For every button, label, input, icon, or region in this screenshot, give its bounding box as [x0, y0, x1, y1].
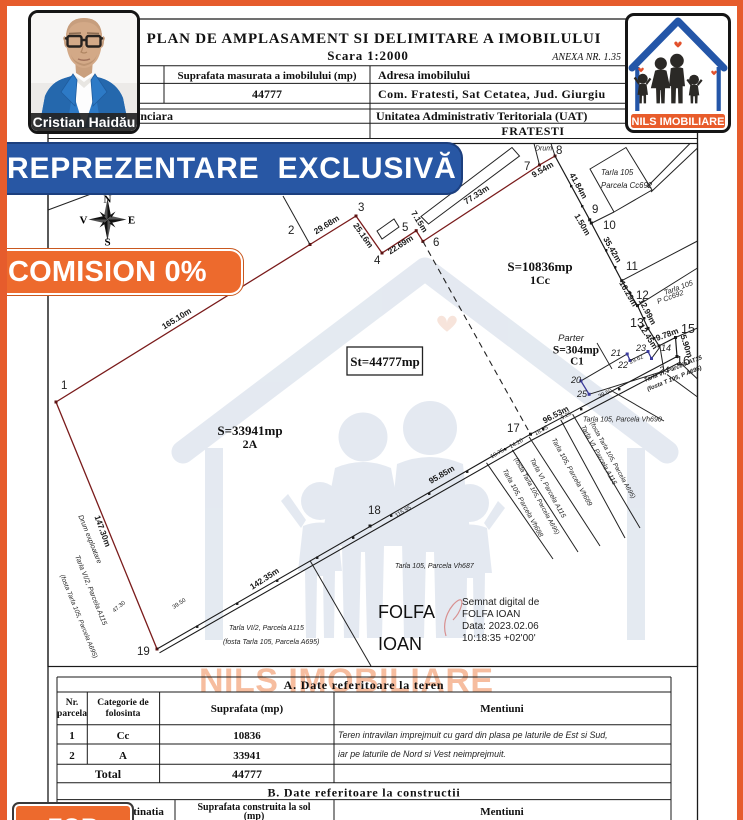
svg-text:23: 23: [635, 343, 646, 353]
svg-text:1: 1: [69, 730, 75, 742]
svg-text:1Cc: 1Cc: [530, 273, 551, 287]
svg-text:17: 17: [507, 423, 520, 435]
svg-text:3: 3: [358, 202, 364, 214]
svg-text:B. Date referitoare la con: B. Date referitoare la constructii: [267, 786, 460, 800]
svg-text:folosinta: folosinta: [106, 709, 141, 719]
svg-text:8: 8: [556, 145, 562, 157]
svg-text:10: 10: [603, 220, 616, 232]
svg-text:18: 18: [368, 505, 381, 517]
svg-text:Suprafata masurata a imobilulu: Suprafata masurata a imobilului (mp): [177, 70, 356, 82]
svg-text:Scara 1:2000: Scara 1:2000: [327, 48, 408, 63]
svg-text:Mentiuni: Mentiuni: [480, 806, 523, 818]
svg-text:parcela: parcela: [57, 709, 87, 719]
svg-text:Tarla 105, Parcela Vh687: Tarla 105, Parcela Vh687: [395, 563, 475, 570]
svg-text:44777: 44777: [232, 767, 262, 781]
svg-text:S: S: [104, 237, 110, 249]
svg-text:Tarla 105: Tarla 105: [601, 168, 634, 177]
svg-text:10836: 10836: [233, 730, 261, 742]
svg-text:E: E: [128, 215, 135, 227]
svg-text:4: 4: [374, 255, 381, 267]
svg-text:14: 14: [661, 343, 671, 353]
svg-text:9: 9: [592, 204, 598, 216]
svg-text:47.30: 47.30: [112, 600, 127, 614]
svg-text:PLAN DE AMPLASAMENT SI DEL: PLAN DE AMPLASAMENT SI DELIMITARE A IMOB…: [147, 31, 602, 47]
svg-text:C1: C1: [570, 356, 583, 368]
svg-text:(fosta Tarla 105, Parcela A695: (fosta Tarla 105, Parcela A695): [223, 639, 319, 646]
svg-text:Data: 2023.02.06: Data: 2023.02.06: [462, 621, 539, 632]
svg-text:9.54m: 9.54m: [530, 159, 555, 179]
svg-text:Adresa imobilului: Adresa imobilului: [378, 68, 471, 82]
svg-text:Teren intravilan imprejmuit cu: Teren intravilan imprejmuit cu gard din …: [338, 730, 608, 740]
svg-text:N: N: [104, 194, 112, 206]
svg-text:St=44777mp: St=44777mp: [350, 354, 420, 369]
svg-text:Cc: Cc: [117, 730, 130, 742]
svg-text:V: V: [80, 215, 88, 227]
svg-text:1.50m: 1.50m: [572, 212, 592, 237]
svg-text:FOLFA IOAN: FOLFA IOAN: [462, 609, 520, 620]
svg-text:FOLFA: FOLFA: [378, 602, 435, 622]
svg-text:S=33941mp: S=33941mp: [217, 423, 282, 438]
svg-text:2A: 2A: [243, 437, 258, 451]
svg-text:Categorie de: Categorie de: [97, 698, 148, 708]
svg-text:22: 22: [617, 360, 628, 370]
svg-text:19: 19: [137, 646, 150, 658]
svg-text:21: 21: [610, 348, 621, 358]
svg-text:Parter: Parter: [558, 333, 585, 344]
svg-text:Mentiuni: Mentiuni: [480, 703, 523, 715]
svg-text:39.50: 39.50: [172, 598, 187, 611]
svg-text:2: 2: [288, 225, 294, 237]
svg-text:S=10836mp: S=10836mp: [507, 259, 572, 274]
svg-text:Tarla VI/2, Parcela A115: Tarla VI/2, Parcela A115: [229, 625, 304, 632]
svg-text:20: 20: [570, 375, 581, 385]
svg-text:NILS IMOBILIARE: NILS IMOBILIARE: [632, 116, 725, 128]
svg-text:FRATESTI: FRATESTI: [501, 124, 564, 138]
svg-text:10.75: 10.75: [490, 448, 506, 460]
svg-text:A: A: [119, 750, 127, 762]
svg-text:Total: Total: [95, 767, 122, 781]
svg-text:29.68m: 29.68m: [312, 213, 341, 236]
svg-text:IOAN: IOAN: [378, 634, 422, 654]
svg-text:10:18:35 +02'00': 10:18:35 +02'00': [462, 633, 536, 644]
svg-text:5: 5: [402, 222, 408, 234]
svg-text:(mp): (mp): [244, 811, 265, 820]
svg-text:A. Date referitoare la ter: A. Date referitoare la teren: [284, 678, 445, 692]
svg-text:2: 2: [69, 750, 75, 762]
svg-text:Semnat digital de: Semnat digital de: [462, 597, 540, 608]
svg-text:77.33m: 77.33m: [462, 183, 491, 207]
svg-text:11: 11: [626, 261, 638, 273]
svg-text:Com. Fratesti, Sat Cetatea, Ju: Com. Fratesti, Sat Cetatea, Jud. Giurgiu: [378, 87, 606, 101]
svg-text:Unitatea Administrativ Teritor: Unitatea Administrativ Teritoriala (UAT): [376, 109, 587, 123]
svg-text:25: 25: [576, 389, 588, 399]
svg-text:Drum: Drum: [535, 146, 552, 153]
svg-text:6: 6: [433, 237, 439, 249]
svg-text:33941: 33941: [233, 750, 261, 762]
svg-text:25.16m: 25.16m: [351, 221, 375, 250]
svg-text:Nr.: Nr.: [66, 698, 79, 708]
svg-text:29.62: 29.62: [629, 354, 645, 365]
svg-text:iar pe laturile de Nord si Ves: iar pe laturile de Nord si Vest neimprej…: [338, 749, 506, 759]
svg-text:ANEXA NR. 1.35: ANEXA NR. 1.35: [551, 52, 621, 63]
svg-text:1: 1: [61, 380, 67, 392]
svg-text:44777: 44777: [252, 87, 282, 101]
svg-text:Suprafata (mp): Suprafata (mp): [211, 703, 284, 715]
svg-text:22.69m: 22.69m: [386, 233, 415, 257]
svg-text:Parcela Cc692: Parcela Cc692: [601, 181, 653, 190]
